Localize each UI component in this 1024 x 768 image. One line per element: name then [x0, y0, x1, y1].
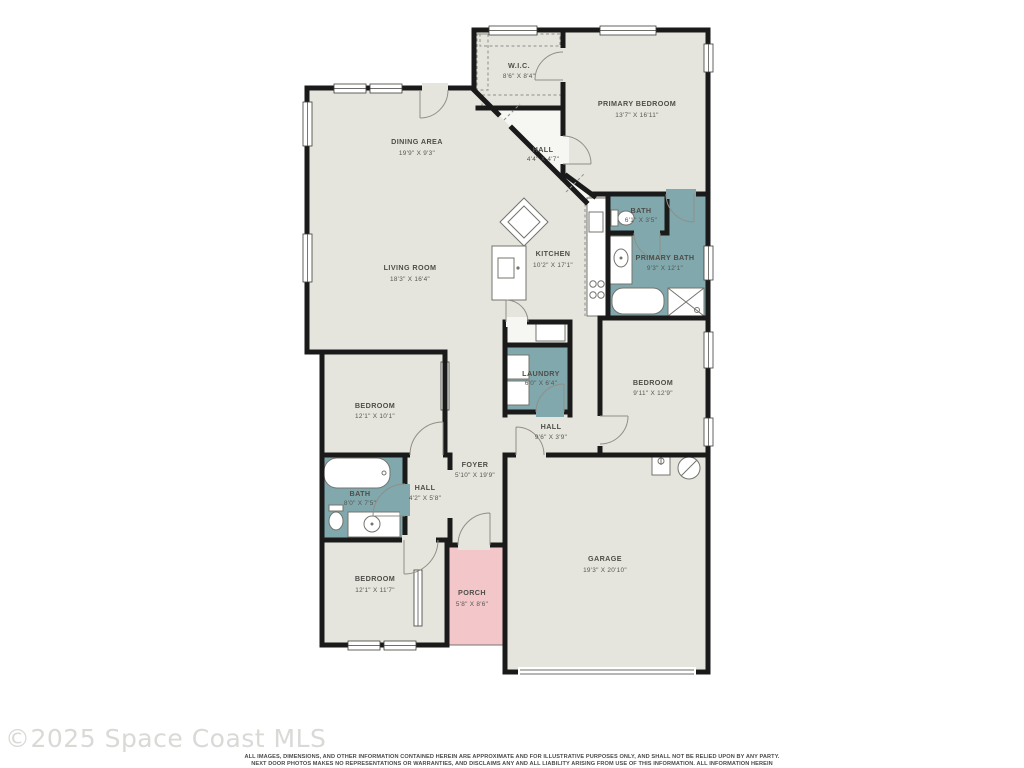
room-dims-dining: 19'9" X 9'3"	[399, 150, 435, 157]
room-label-living: LIVING ROOM	[384, 263, 437, 272]
door-gap	[516, 450, 546, 460]
room-label-porch: PORCH	[458, 588, 486, 597]
room-dims-hall-left: 4'2" X 5'8"	[409, 495, 441, 502]
faucet-icon	[620, 257, 623, 260]
door-gap	[558, 48, 568, 82]
room-label-hall-left: HALL	[415, 483, 436, 492]
room-dims-garage: 19'3" X 20'10"	[583, 567, 627, 574]
room-dims-primary-bath: 9'3" X 12'1"	[647, 265, 683, 272]
room-label-bedroom-bottom: BEDROOM	[355, 574, 395, 583]
room-dims-hall-mid: 9'6" X 3'9"	[535, 434, 567, 441]
door-gap	[506, 317, 527, 327]
room-label-primary-bedroom: PRIMARY BEDROOM	[598, 99, 676, 108]
room-dims-laundry: 6'0" X 6'4"	[525, 380, 557, 387]
room-label-garage: GARAGE	[588, 554, 622, 563]
disclaimer-line1: ALL IMAGES, DIMENSIONS, AND OTHER INFORM…	[244, 754, 779, 760]
room-dims-wic: 8'6" X 8'4"	[503, 73, 535, 80]
room-label-kitchen: KITCHEN	[536, 249, 571, 258]
faucet-icon	[371, 523, 374, 526]
bathtub-icon	[612, 288, 664, 314]
pantry-shelf	[536, 324, 565, 341]
kitchen-island-lower	[492, 246, 526, 300]
room-dims-bedroom-mid: 12'1" X 10'1"	[355, 413, 395, 420]
room-label-bedroom-mid: BEDROOM	[355, 401, 395, 410]
toilet-tank-icon	[611, 210, 618, 226]
door-gap	[595, 416, 605, 446]
room-label-bath-left: BATH	[349, 489, 370, 498]
room-dims-living: 18'3" X 16'4"	[390, 276, 430, 283]
floorplan-drawing: W.I.C. 8'6" X 8'4" PRIMARY BEDROOM 13'7"…	[0, 0, 1024, 768]
hall-opening	[445, 470, 455, 518]
door-gap	[536, 407, 564, 417]
door-gap	[422, 83, 448, 93]
floorplan-page: W.I.C. 8'6" X 8'4" PRIMARY BEDROOM 13'7"…	[0, 0, 1024, 768]
room-dims-bath-wc: 6'1" X 3'5"	[625, 217, 657, 224]
room-label-dining: DINING AREA	[391, 137, 443, 146]
room-label-bath-wc: BATH	[630, 206, 651, 215]
room-dims-foyer: 5'10" X 19'9"	[455, 472, 495, 479]
faucet-icon	[516, 266, 519, 269]
garage-door	[518, 667, 696, 677]
room-label-laundry: LAUNDRY	[522, 369, 560, 378]
disclaimer-line2: NEXT DOOR PHOTOS MAKES NO REPRESENTATION…	[251, 761, 773, 767]
door-gap	[558, 136, 569, 164]
room-dims-hall-top: 4'4" X 4'7"	[527, 156, 559, 163]
room-dims-porch: 5'8" X 8'6"	[456, 601, 488, 608]
door-gap	[410, 450, 443, 460]
room-label-bedroom-right: BEDROOM	[633, 378, 673, 387]
primary-bath-entry-floor	[665, 196, 706, 233]
room-dims-bedroom-right: 9'11" X 12'9"	[633, 390, 673, 397]
room-label-primary-bath: PRIMARY BATH	[636, 253, 695, 262]
bathtub-icon	[324, 458, 390, 488]
toilet-icon	[329, 512, 343, 530]
room-label-wic: W.I.C.	[508, 61, 530, 70]
door-gap	[634, 228, 660, 238]
room-dims-kitchen: 10'2" X 17'1"	[533, 262, 573, 269]
door-gap	[666, 189, 696, 199]
door-gap	[402, 535, 436, 545]
room-dims-bedroom-bottom: 12'1" X 11'7"	[355, 587, 395, 594]
room-label-hall-mid: HALL	[541, 422, 562, 431]
room-label-foyer: FOYER	[462, 460, 489, 469]
room-label-hall-top: HALL	[533, 145, 554, 154]
toilet-tank-icon	[329, 505, 343, 511]
room-dims-primary-bedroom: 13'7" X 16'11"	[615, 112, 658, 119]
primary-vanity	[610, 236, 632, 284]
door-gap	[458, 540, 490, 550]
room-dims-bath-left: 8'0" X 7'5"	[344, 500, 376, 507]
mls-watermark: ©2025 Space Coast MLS	[5, 724, 326, 753]
